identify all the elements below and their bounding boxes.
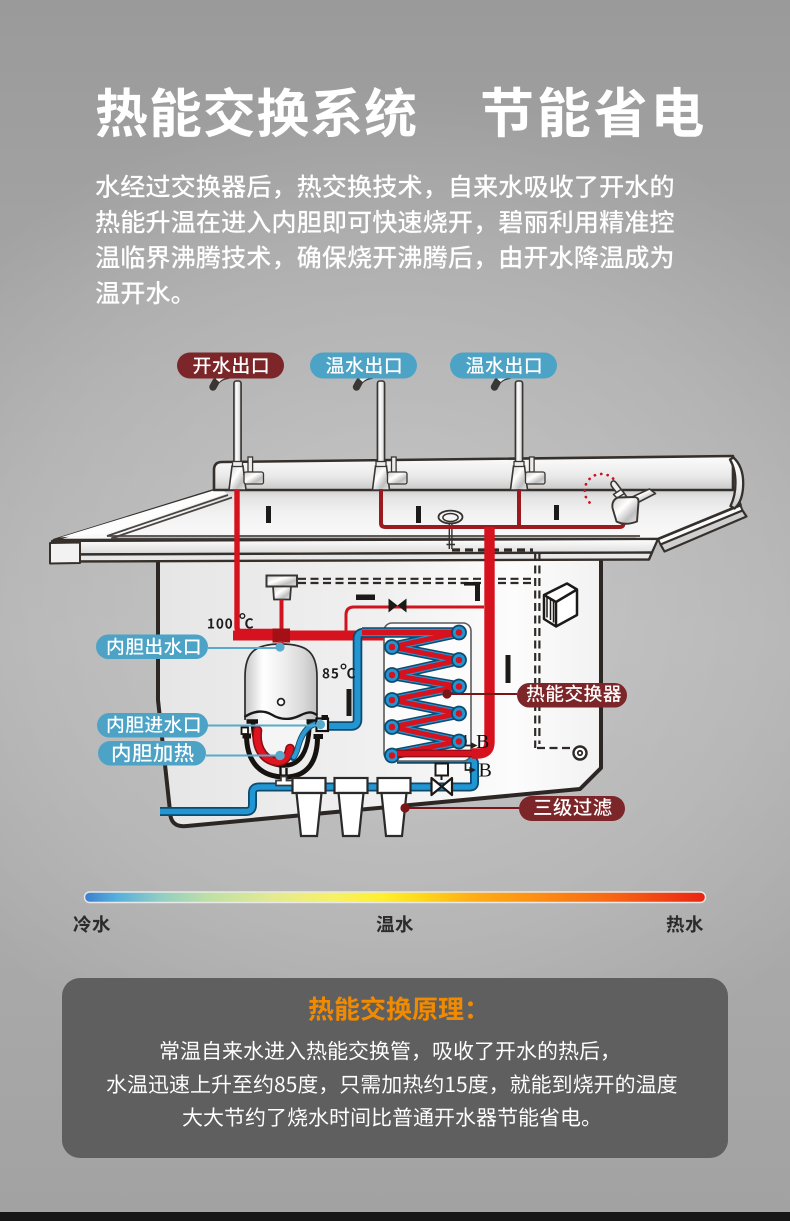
svg-text:B: B bbox=[476, 731, 489, 753]
svg-text:B: B bbox=[479, 760, 492, 782]
